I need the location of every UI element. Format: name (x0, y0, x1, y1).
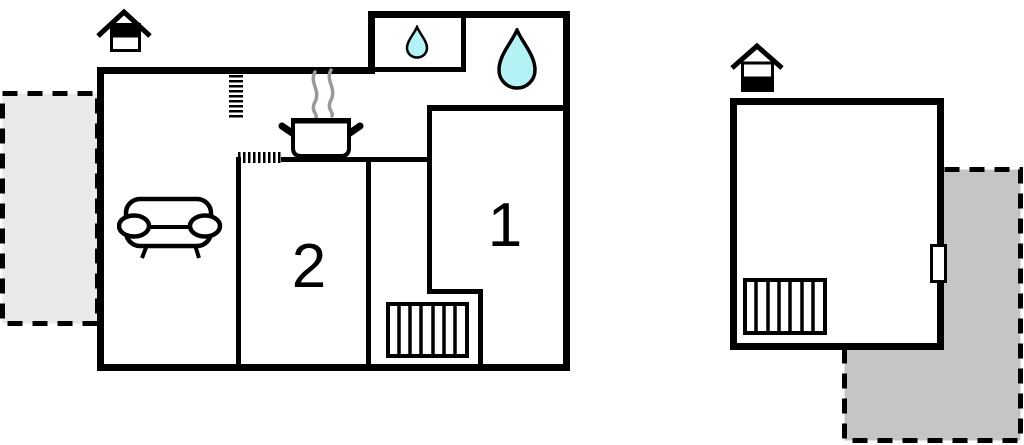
interior-wall-room2-left (236, 157, 241, 364)
interior-wall-room1-top (427, 105, 570, 111)
interior-wall-wc-bottom (370, 67, 466, 72)
main-building-bumpout-floor (368, 11, 570, 74)
interior-wall-wc-bath-divider (461, 18, 466, 72)
door-opening-hatch-vertical (229, 75, 243, 119)
floor-level-house-icon-upper (95, 8, 153, 56)
pot-body (293, 120, 349, 156)
sofa-icon (117, 195, 223, 263)
annex-wall-top (730, 98, 944, 105)
interior-wall-room1-left (427, 111, 432, 293)
outer-wall-bumpout-left (368, 11, 375, 74)
water-drop-small-icon (405, 25, 429, 59)
terrace-left (0, 91, 103, 327)
outer-wall-right (563, 11, 570, 371)
outer-wall-bottom (97, 364, 570, 371)
outer-wall-bumpout-top (368, 11, 570, 18)
sofa-armrest (119, 216, 149, 237)
steam-line (329, 70, 332, 116)
interior-wall-room2-right (366, 159, 371, 364)
annex-wall-left (730, 98, 737, 350)
floor-level-house-icon-lower (729, 43, 787, 93)
floorplan-canvas: 1 2 (0, 0, 1024, 445)
annex-wall-bottom (730, 343, 944, 350)
sofa-armrest (190, 216, 220, 237)
terrace-left-area (3, 94, 98, 324)
outer-wall-left (97, 67, 104, 371)
interior-wall-stair-step-h (427, 289, 483, 294)
annex-wall-right (937, 98, 944, 350)
window-door-white-rect (930, 244, 947, 283)
stairs-icon-annex (743, 278, 827, 335)
house-upper-floor-fill (112, 25, 140, 38)
room-label-1: 1 (475, 192, 535, 260)
stairs-icon-main (386, 302, 469, 358)
steam-line (313, 72, 316, 118)
stove-pot-icon (276, 64, 368, 160)
water-drop-large-icon (496, 28, 538, 92)
room-label-2: 2 (279, 233, 339, 301)
interior-wall-stair-step-v (478, 291, 483, 364)
house-lower-floor-fill (743, 77, 773, 91)
